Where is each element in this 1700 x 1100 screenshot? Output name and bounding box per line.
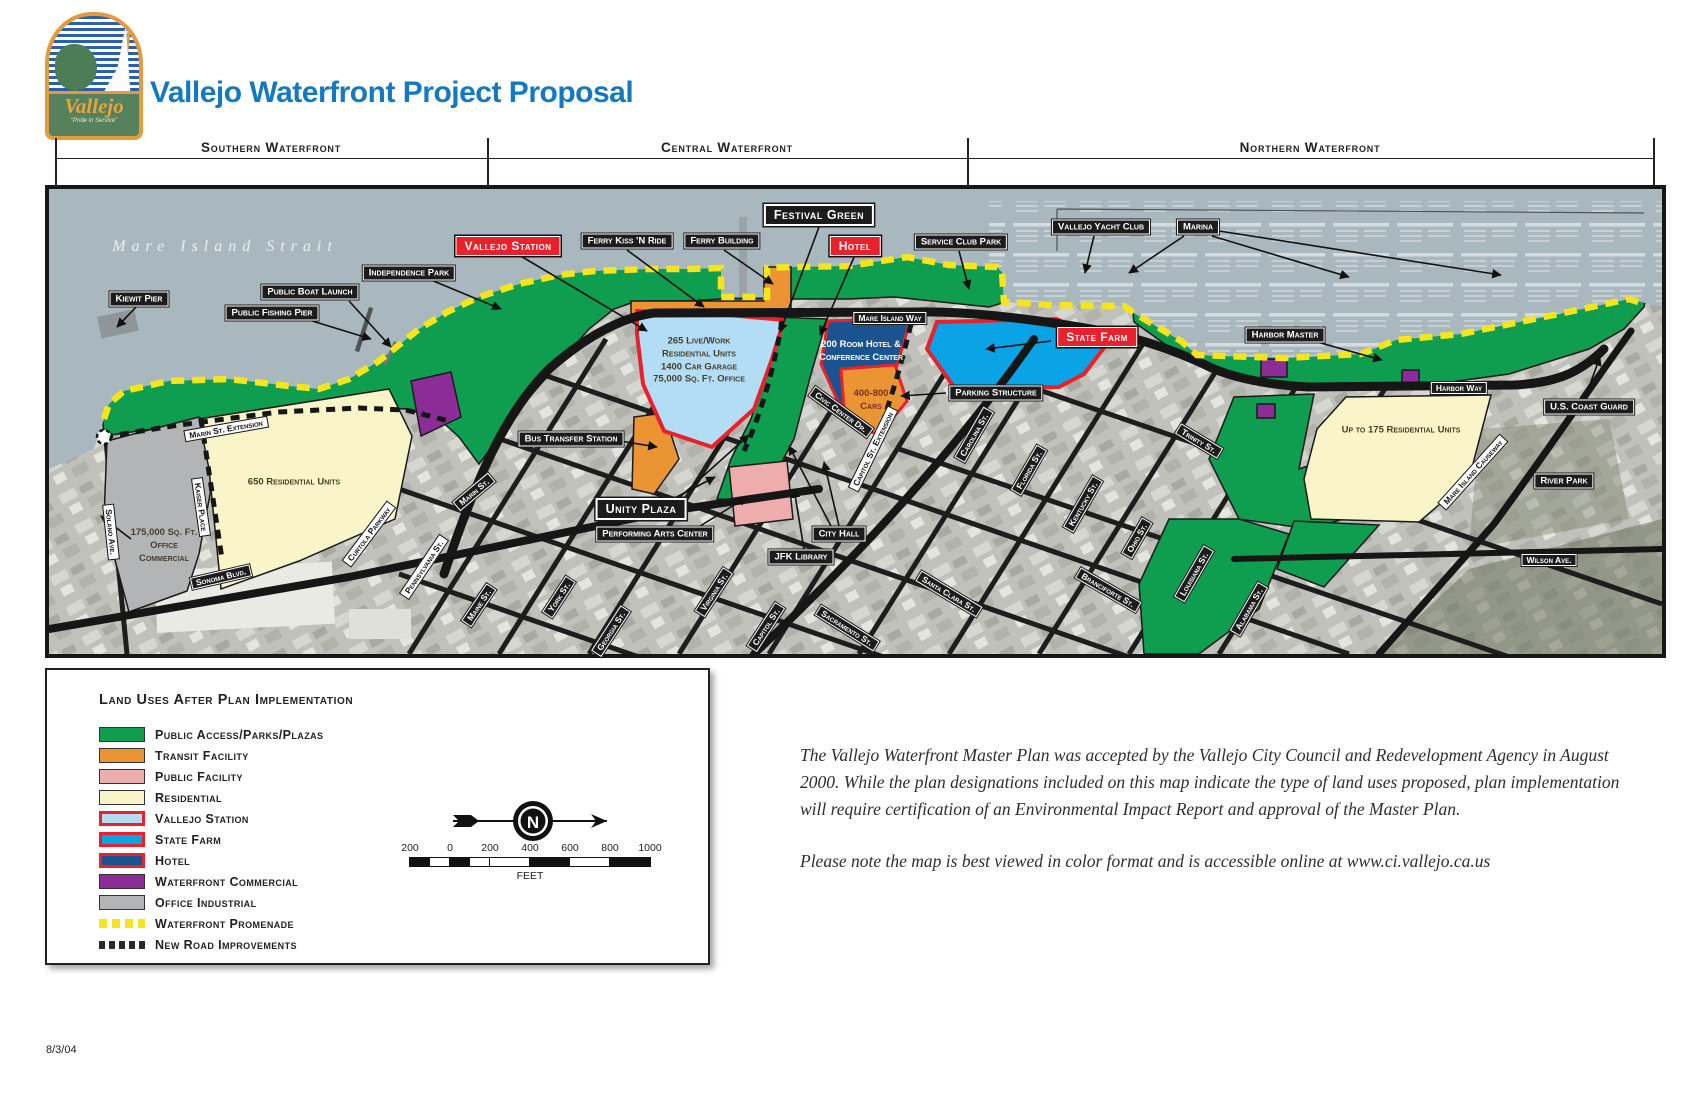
water-body-label: Mare Island Strait [112, 238, 338, 256]
legend-label: Waterfront Promenade [155, 917, 294, 931]
label-parking-structure: Parking Structure [949, 386, 1042, 401]
label-kiewit-pier: Kiewit Pier [110, 292, 169, 307]
building-roof [349, 609, 411, 639]
section-label-central: Central Waterfront [661, 140, 793, 155]
compass-n: N [527, 813, 539, 832]
map-date: 8/3/04 [46, 1044, 77, 1056]
vallejo-station-swatch [99, 811, 145, 826]
label-independence-park: Independence Park [363, 266, 455, 281]
waterfront-section-ruler: Southern Waterfront Central Waterfront N… [55, 138, 1655, 185]
legend-item: Hotel [99, 852, 190, 869]
waterfront-commercial-swatch [99, 874, 145, 889]
scale-cells [409, 857, 651, 867]
new-road-swatch [99, 941, 145, 949]
logo-name-band: Vallejo "Pride in Service" [49, 91, 139, 136]
label-vallejo-station: Vallejo Station [456, 236, 561, 256]
legend-item: Waterfront Commercial [99, 873, 298, 890]
label-city-hall: City Hall [813, 527, 866, 542]
note-vallejo-station-program: 265 Live/Work Residential Units 1400 Car… [653, 335, 745, 386]
legend-item: Public Facility [99, 768, 243, 785]
waterfront-commercial-small [1261, 359, 1287, 377]
label-us-coast-guard: U.S. Coast Guard [1544, 400, 1634, 415]
section-tick [55, 138, 57, 185]
legend-item: Residential [99, 789, 222, 806]
waterfront-promenade-swatch [99, 919, 145, 928]
scale-tick: 200 [481, 842, 499, 854]
public-facility-swatch [99, 769, 145, 784]
scale-bar: 200 0 200 400 600 800 1000 FEET [409, 842, 651, 882]
legend-label: New Road Improvements [155, 938, 297, 952]
legend-item: State Farm [99, 831, 221, 848]
legend-label: Vallejo Station [155, 812, 249, 826]
scale-unit: FEET [409, 870, 651, 882]
label-state-farm: State Farm [1057, 327, 1137, 347]
label-ferry-building: Ferry Building [684, 234, 759, 249]
scale-tick: 600 [561, 842, 579, 854]
public-access-swatch [99, 727, 145, 742]
legend-item: Waterfront Promenade [99, 915, 294, 932]
label-public-boat-launch: Public Boat Launch [261, 285, 358, 300]
label-marina: Marina [1177, 220, 1219, 235]
section-tick [967, 138, 969, 185]
waterfront-plan-map: Mare Island Strait Kiewit Pier Public Fi… [45, 185, 1666, 658]
legend-label: State Farm [155, 833, 221, 847]
legend-item: Office Industrial [99, 894, 256, 911]
note-hotel-program: 200 Room Hotel & Conference Center [819, 339, 903, 365]
legend-title: Land Uses After Plan Implementation [99, 692, 353, 708]
street-mare-island-way: Mare Island Way [853, 312, 926, 324]
label-hotel: Hotel [830, 236, 881, 256]
residential-swatch [99, 790, 145, 805]
plan-notes: The Vallejo Waterfront Master Plan was a… [800, 742, 1630, 900]
label-festival-green: Festival Green [764, 204, 874, 226]
label-jfk-library: JFK Library [769, 550, 834, 565]
plan-note-online: Please note the map is best viewed in co… [800, 848, 1630, 875]
note-175-residential: Up to 175 Residential Units [1342, 425, 1461, 438]
label-service-club-park: Service Club Park [915, 235, 1007, 250]
legend-item: Public Access/Parks/Plazas [99, 726, 323, 743]
legend-label: Office Industrial [155, 896, 256, 910]
legend-label: Hotel [155, 854, 190, 868]
waterfront-commercial-small [1257, 404, 1275, 418]
label-harbor-master: Harbor Master [1246, 328, 1325, 343]
legend-item: New Road Improvements [99, 936, 297, 953]
logo-tagline: "Pride in Service" [49, 118, 139, 124]
ferry-pier-structure [739, 217, 747, 297]
scale-tick: 1000 [638, 842, 661, 854]
legend-label: Public Access/Parks/Plazas [155, 728, 323, 742]
street-harbor-way: Harbor Way [1431, 382, 1487, 394]
section-label-northern: Northern Waterfront [1240, 140, 1381, 155]
note-650-residential: 650 Residential Units [248, 477, 340, 490]
plan-note-paragraph: The Vallejo Waterfront Master Plan was a… [800, 742, 1630, 823]
hotel-swatch [99, 853, 145, 868]
scale-tick: 200 [401, 842, 419, 854]
legend-item: Transit Facility [99, 747, 249, 764]
compass-north-arrow: N [445, 798, 615, 844]
label-public-fishing-pier: Public Fishing Pier [226, 306, 319, 321]
section-rule [55, 158, 1655, 159]
label-ferry-kiss-n-ride: Ferry Kiss 'N Ride [582, 234, 673, 249]
page: Vallejo "Pride in Service" Vallejo Water… [0, 0, 1700, 1100]
legend-item: Vallejo Station [99, 810, 249, 827]
page-title: Vallejo Waterfront Project Proposal [150, 76, 633, 110]
office-industrial-swatch [99, 895, 145, 910]
legend-label: Waterfront Commercial [155, 875, 298, 889]
label-performing-arts-center: Performing Arts Center [596, 527, 713, 542]
road-terminus-circle [97, 430, 111, 444]
vallejo-city-logo: Vallejo "Pride in Service" [45, 12, 143, 140]
transit-facility-swatch [99, 748, 145, 763]
state-farm-swatch [99, 832, 145, 847]
note-175k-office: 175,000 Sq. Ft. Office Commercial [131, 527, 198, 565]
logo-name: Vallejo [49, 94, 139, 118]
label-unity-plaza: Unity Plaza [596, 498, 687, 520]
section-tick [487, 138, 489, 185]
note-parking-cars: 400-800 Cars [854, 388, 889, 414]
label-bus-transfer-station: Bus Transfer Station [519, 432, 624, 447]
legend-label: Transit Facility [155, 749, 249, 763]
scale-tick-values: 200 0 200 400 600 800 1000 [409, 842, 651, 855]
scale-tick: 400 [521, 842, 539, 854]
section-tick [1653, 138, 1655, 185]
scale-tick: 800 [601, 842, 619, 854]
label-river-park: River Park [1534, 474, 1593, 489]
section-label-southern: Southern Waterfront [201, 140, 341, 155]
map-legend: Land Uses After Plan Implementation Publ… [45, 668, 710, 965]
legend-label: Residential [155, 791, 222, 805]
label-vallejo-yacht-club: Vallejo Yacht Club [1052, 220, 1150, 235]
street-wilson-ave: Wilson Ave. [1522, 554, 1577, 566]
legend-label: Public Facility [155, 770, 243, 784]
scale-tick: 0 [447, 842, 453, 854]
